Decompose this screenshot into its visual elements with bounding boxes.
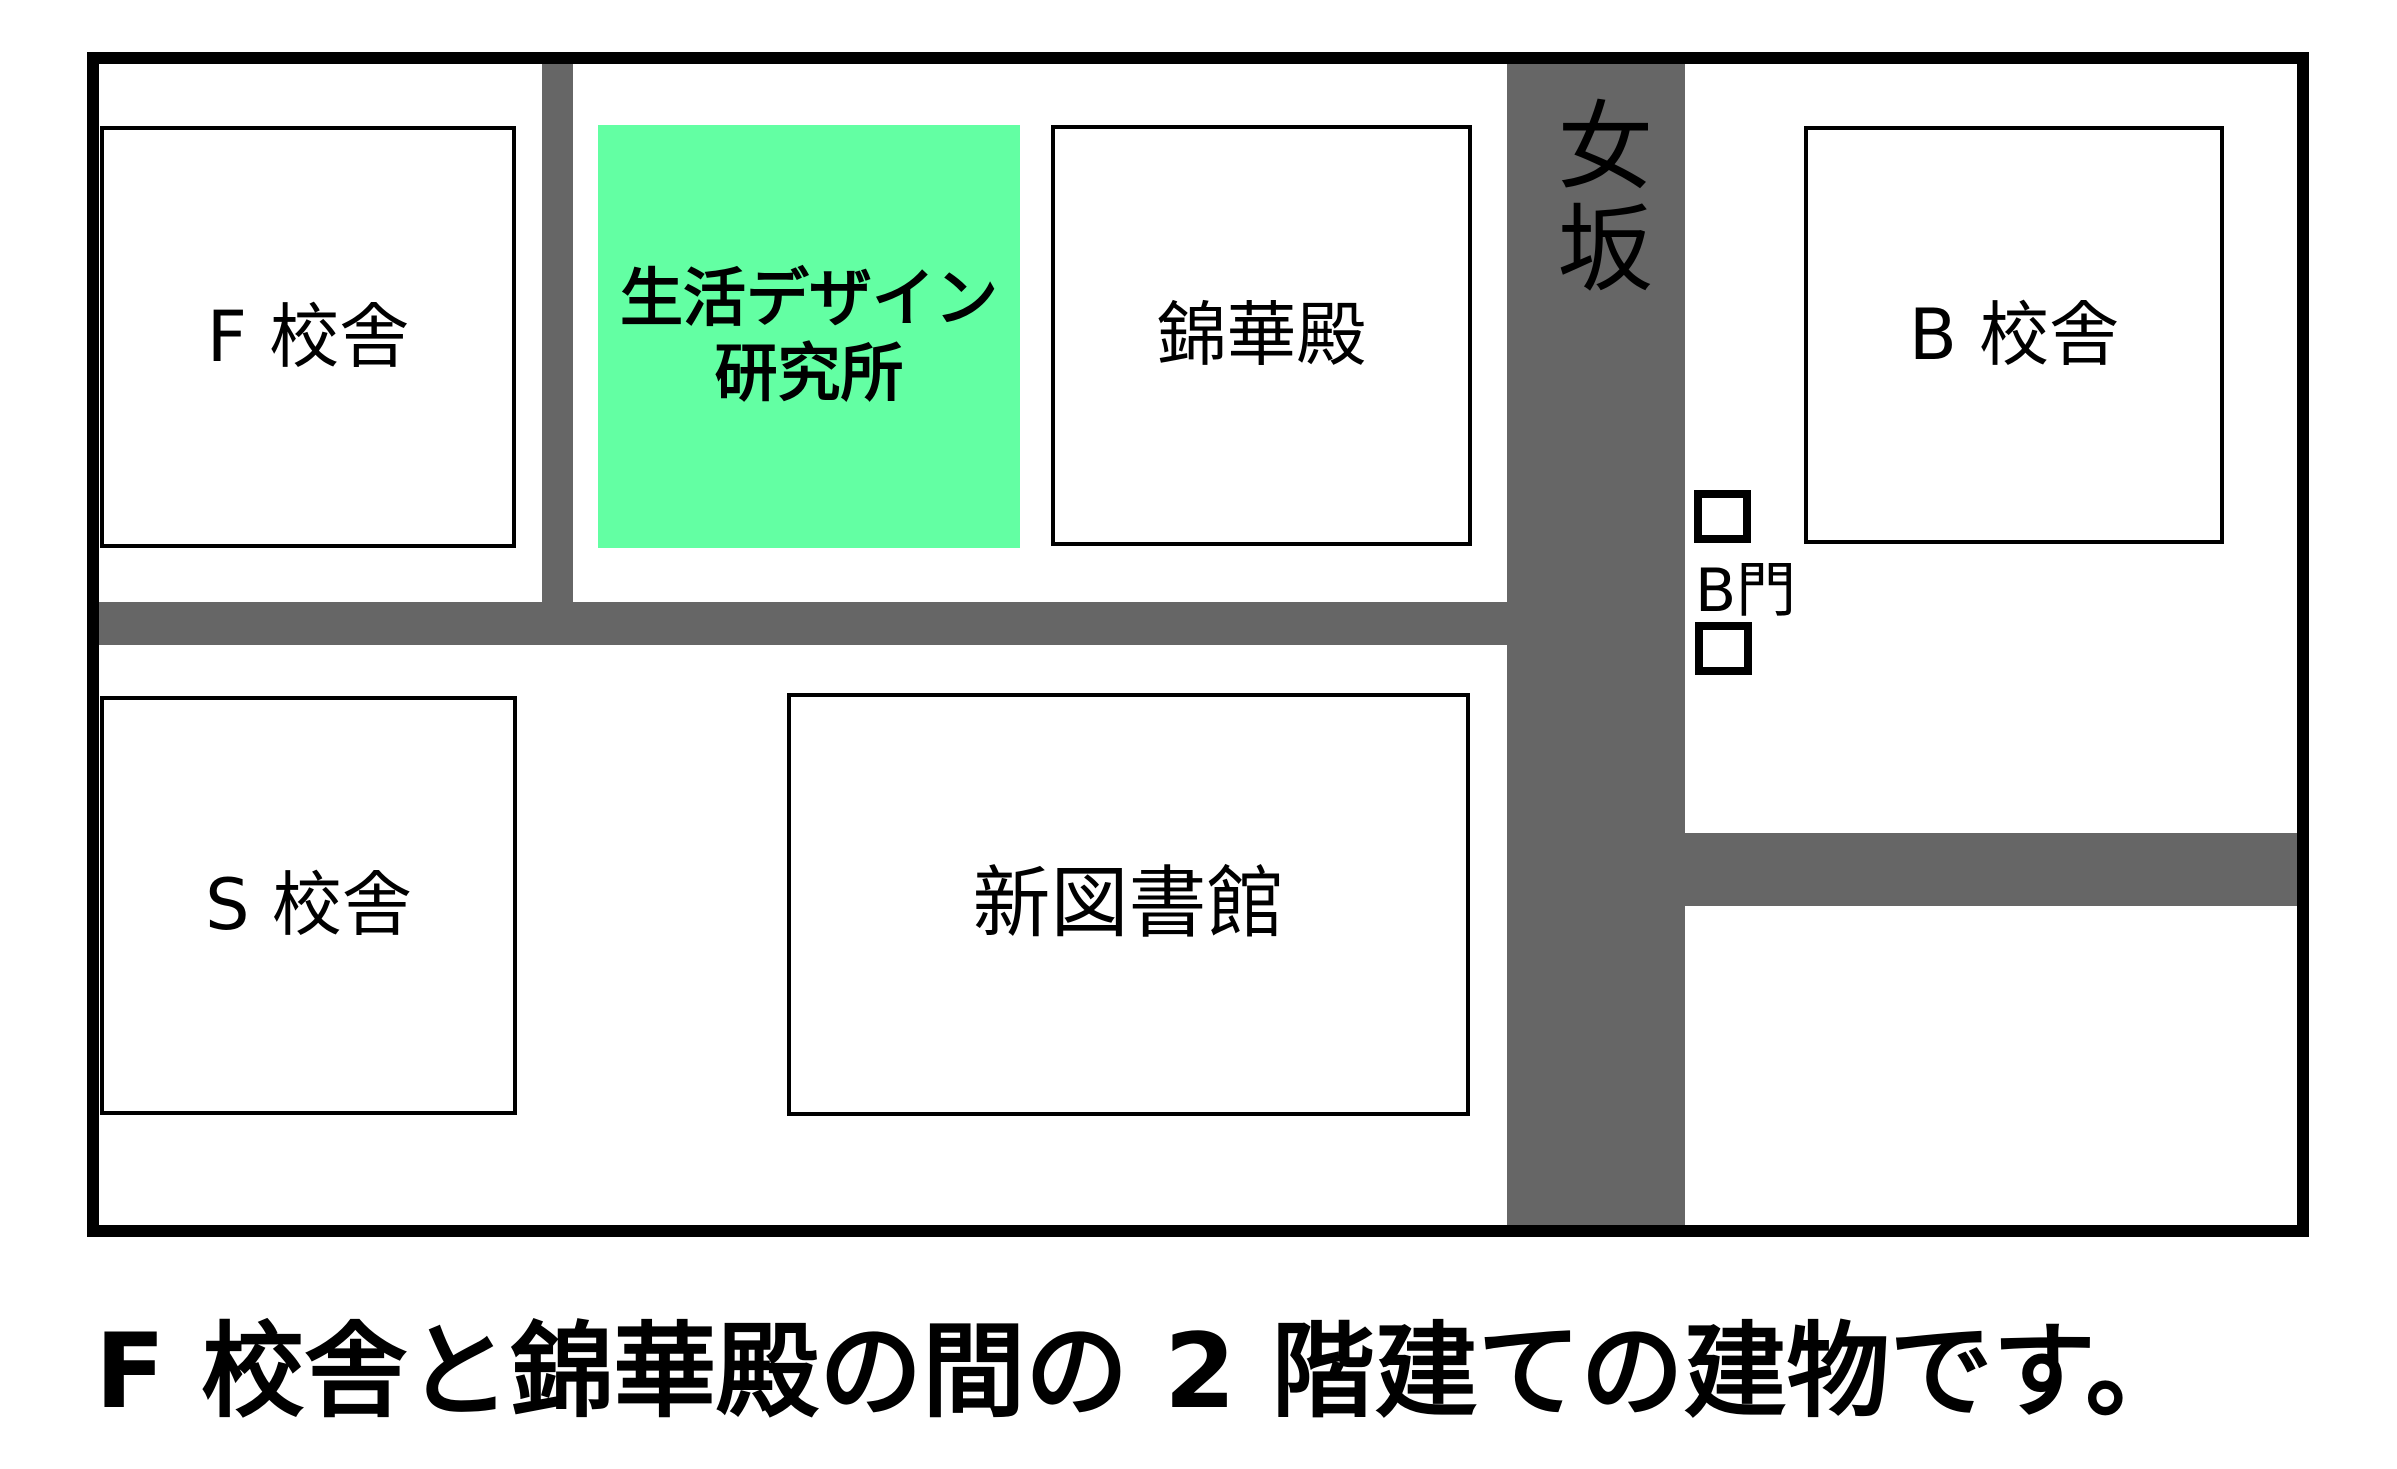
building-kinkaden-label: 錦華殿 (1157, 297, 1367, 374)
onnazaka-road-label: 女坂 (1546, 96, 1646, 300)
campus-map: 女坂 F 校舎 生活デザイン 研究所 錦華殿 B 校舎 S 校舎 新図書館 B門 (87, 52, 2309, 1237)
b-gate-square-south (1695, 622, 1752, 675)
b-gate-square-north (1694, 490, 1751, 543)
building-design-institute: 生活デザイン 研究所 (598, 125, 1020, 548)
building-new-library: 新図書館 (787, 693, 1470, 1116)
building-s: S 校舎 (100, 696, 517, 1115)
building-design-institute-label: 生活デザイン 研究所 (620, 262, 998, 411)
building-kinkaden: 錦華殿 (1051, 125, 1472, 546)
road-horizontal-west (99, 602, 1507, 645)
building-f-label: F 校舎 (207, 299, 410, 376)
design-institute-label-line1: 生活デザイン (620, 262, 998, 336)
road-horizontal-east (1685, 833, 2297, 906)
building-new-library-label: 新図書館 (972, 862, 1284, 948)
design-institute-label-line2: 研究所 (620, 337, 998, 411)
road-vertical-west (542, 64, 573, 645)
b-gate-label: B門 (1695, 560, 1796, 623)
map-caption: F 校舎と錦華殿の間の 2 階建ての建物です。 (95, 1288, 2355, 1437)
building-b: B 校舎 (1804, 126, 2224, 544)
building-b-label: B 校舎 (1909, 297, 2119, 374)
building-s-label: S 校舎 (205, 867, 412, 944)
building-f: F 校舎 (100, 126, 516, 548)
